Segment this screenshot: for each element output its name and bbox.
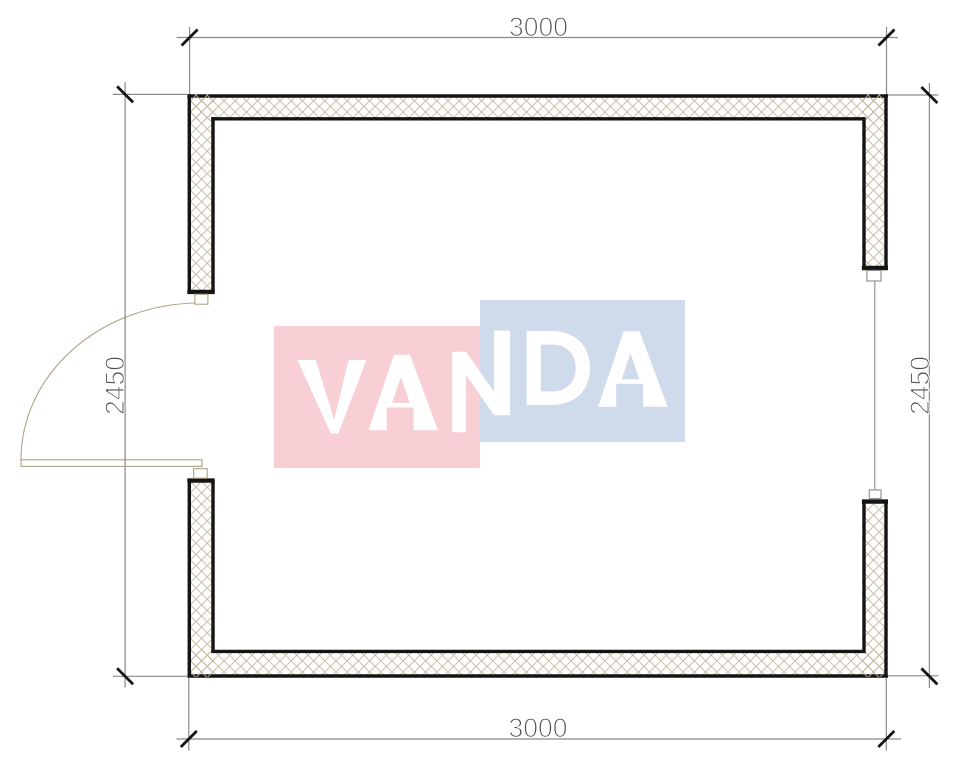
svg-text:2450: 2450 <box>905 356 935 415</box>
svg-text:3000: 3000 <box>509 12 568 42</box>
svg-text:3000: 3000 <box>509 713 568 743</box>
svg-text:2450: 2450 <box>100 356 130 415</box>
